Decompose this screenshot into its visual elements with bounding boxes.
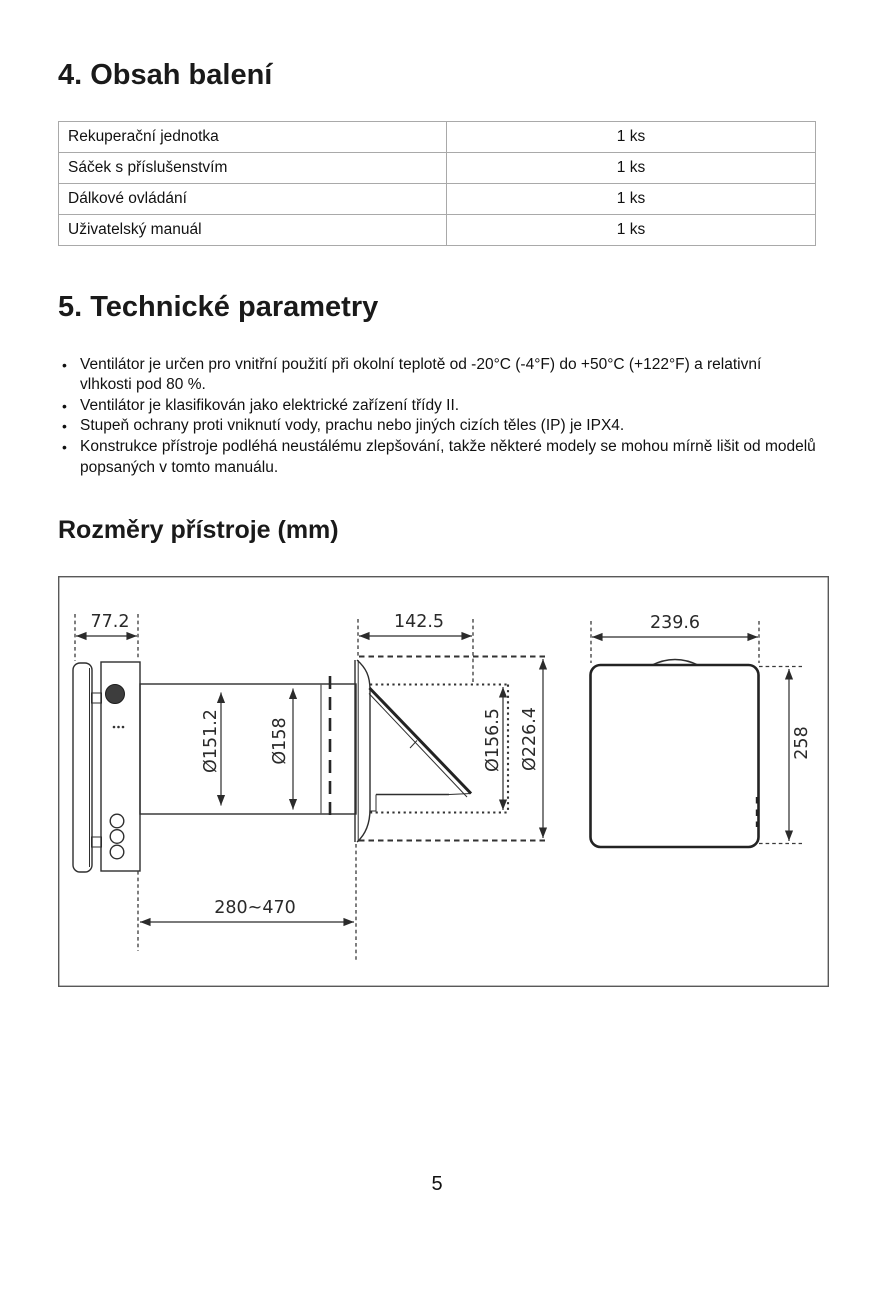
dim-panel-width: 239.6 — [591, 613, 759, 663]
sensor-grille — [106, 685, 125, 704]
button — [110, 814, 124, 828]
dim-label-front-depth: 77.2 — [91, 612, 130, 632]
front-panel-view — [591, 660, 760, 848]
dim-duct-inner: Ø151.2 — [201, 693, 221, 806]
list-item: Ventilátor je určen pro vnitřní použití … — [58, 355, 816, 396]
package-contents-table: Rekuperační jednotka 1 ks Sáček s příslu… — [58, 121, 816, 246]
table-row: Rekuperační jednotka 1 ks — [59, 121, 816, 152]
item-name-cell: Sáček s příslušenstvím — [59, 152, 447, 183]
list-item: Ventilátor je klasifikován jako elektric… — [58, 396, 816, 417]
table-row: Uživatelský manuál 1 ks — [59, 214, 816, 245]
side-slot — [756, 822, 760, 828]
item-qty-cell: 1 ks — [447, 152, 816, 183]
table-row: Dálkové ovládání 1 ks — [59, 183, 816, 214]
telescopic-duct — [140, 676, 356, 822]
dim-label-duct-inner: Ø151.2 — [201, 709, 221, 773]
button — [110, 845, 124, 859]
item-qty-cell: 1 ks — [447, 183, 816, 214]
section-title-package-contents: 4. Obsah balení — [58, 58, 816, 93]
dim-label-hood-depth: 142.5 — [394, 612, 444, 632]
manual-page: 4. Obsah balení Rekuperační jednotka 1 k… — [0, 58, 874, 1196]
dimension-drawing: 77.2 — [58, 576, 829, 987]
list-item: Konstrukce přístroje podléhá neustálému … — [58, 437, 816, 478]
technical-parameters-list: Ventilátor je určen pro vnitřní použití … — [58, 355, 816, 479]
dim-duct-length: 280~470 — [138, 844, 356, 961]
dim-label-hood-outer: Ø226.4 — [520, 707, 540, 771]
section-title-device-dimensions: Rozměry přístroje (mm) — [58, 515, 816, 545]
item-qty-cell: 1 ks — [447, 214, 816, 245]
table-row: Sáček s příslušenstvím 1 ks — [59, 152, 816, 183]
button — [110, 830, 124, 844]
outdoor-hood-side-view — [355, 660, 471, 842]
dim-label-panel-width: 239.6 — [650, 613, 700, 633]
item-name-cell: Dálkové ovládání — [59, 183, 447, 214]
side-slot — [756, 810, 760, 817]
item-name-cell: Uživatelský manuál — [59, 214, 447, 245]
item-qty-cell: 1 ks — [447, 121, 816, 152]
page-number: 5 — [58, 1173, 816, 1196]
dim-duct-outer: Ø158 — [270, 689, 293, 810]
dim-hood-hole: Ø156.5 — [370, 685, 508, 813]
section-title-technical-parameters: 5. Technické parametry — [58, 290, 816, 325]
side-slot — [756, 797, 760, 804]
dim-front-depth: 77.2 — [75, 612, 138, 661]
dim-hood-depth: 142.5 — [358, 612, 473, 682]
dimension-drawing-svg: 77.2 — [58, 576, 829, 987]
list-item: Stupeň ochrany proti vniknutí vody, prac… — [58, 416, 816, 437]
dim-label-duct-length: 280~470 — [214, 898, 295, 918]
dim-label-panel-height: 258 — [792, 726, 812, 759]
indoor-unit-side-view — [73, 662, 140, 872]
item-name-cell: Rekuperační jednotka — [59, 121, 447, 152]
dim-label-hood-hole: Ø156.5 — [483, 708, 503, 772]
dim-label-duct-outer: Ø158 — [270, 718, 290, 765]
dim-panel-height: 258 — [759, 667, 812, 844]
